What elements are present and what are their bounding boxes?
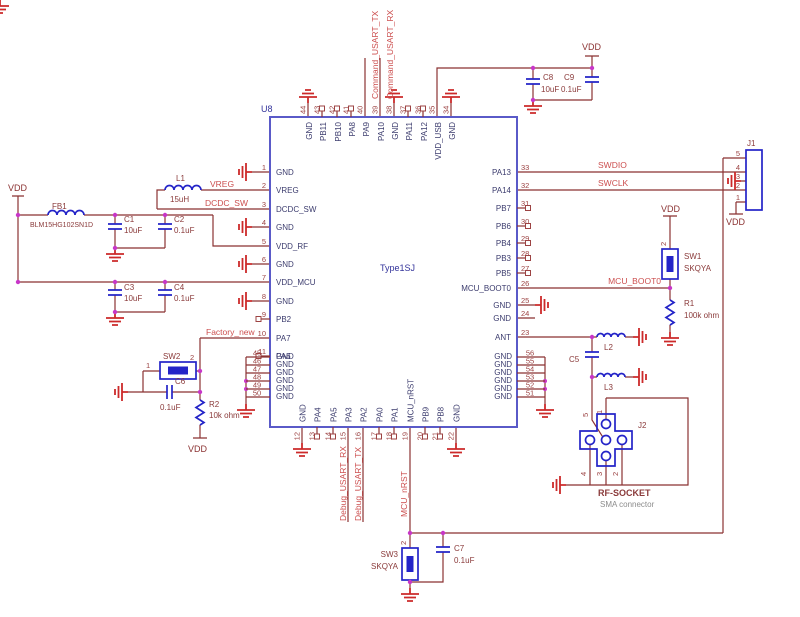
c4-ref: C4 [174,283,185,292]
sw1-value: SKQYA [684,264,712,273]
r2-ref: R2 [209,400,220,409]
inductor-l3-symbol [597,374,625,378]
ground-symbol [237,404,255,417]
switch-sw1-actuator [667,256,674,272]
l3-ref: L3 [604,383,613,392]
pin-name: PA4 [314,407,323,422]
pin-name: PB6 [496,222,512,231]
capacitor-c9-symbol [585,77,599,82]
pin-number: 10 [258,329,266,338]
pin-name: GND [493,301,511,310]
c6-ref: C6 [175,377,186,386]
pin-number: 6 [262,255,266,264]
pin-number: 22 [447,432,456,440]
pin-name: VDD_MCU [276,278,316,287]
pin-number: 32 [521,181,529,190]
c3-value: 10uF [124,294,142,303]
net-dcdc-sw: DCDC_SW [205,198,248,208]
ground-symbol [447,443,465,456]
capacitor-c3-symbol [108,290,122,295]
wires-power-left [12,172,270,312]
pin-number: 24 [521,309,529,318]
pin-number: 19 [401,432,410,440]
ground-symbol [401,588,419,601]
pin-number: 37 [399,106,408,114]
pin-name: GND [391,122,400,140]
vdd-label: VDD [661,204,681,214]
resistor-r2-symbol [196,400,204,425]
pin-number: 2 [262,181,266,190]
net-swclk: SWCLK [598,178,629,188]
pin-number: 51 [526,389,534,398]
capacitor-c7-symbol [436,547,450,552]
ground-symbol [299,90,317,103]
sw3-ref: SW3 [381,550,399,559]
pin-number: 50 [253,389,261,398]
j2-subtitle: SMA connector [600,500,655,509]
j1-pin-number: 2 [736,181,740,190]
pin-name: PA2 [360,407,369,422]
pin-number: 3 [262,200,266,209]
ground-symbol [293,443,311,456]
pin-number: 43 [313,106,322,114]
c3-ref: C3 [124,283,135,292]
ferrite-bead-fb1-symbol [48,211,84,216]
j1-pin-number: 3 [736,172,740,181]
pin-number: 25 [521,296,529,305]
ground-symbol [239,163,252,181]
pin-name: PA12 [420,121,429,141]
pin-name: DCDC_SW [276,205,317,214]
pin-name: VDD_RF [276,242,308,251]
pin-number: 41 [342,106,351,114]
sw1-ref: SW1 [684,252,702,261]
ground-symbol [239,255,252,273]
pin-name: GND [448,122,457,140]
ground-symbol [535,296,548,314]
c7-ref: C7 [454,544,465,553]
c2-value: 0.1uF [174,226,195,235]
pin-name: MCU_BOOT0 [461,284,511,293]
c8-ref: C8 [543,73,554,82]
ground-symbol [633,328,646,346]
c9-value: 0.1uF [561,85,582,94]
ground-symbol [553,476,566,494]
inductor-l1-symbol [165,186,201,191]
pin-name: GND [276,392,294,401]
net-command-usart-rx: Command_USART_RX [385,10,395,99]
pin-name: PB9 [422,406,431,422]
sw3-pin2: 2 [399,541,408,545]
wires-right [517,158,746,533]
j2-ref: J2 [638,421,647,430]
pin-number: 16 [354,432,363,440]
net-factory-new: Factory_new [206,327,256,337]
sw2-pin1: 1 [146,361,150,370]
pin-name: PA11 [405,121,414,140]
pin-number: 1 [262,163,266,172]
connector-j1-body [746,150,762,210]
pin-name: GND [299,404,308,422]
sw2-ref: SW2 [163,352,181,361]
net-debug-usart-rx: Debug_USART_RX [338,446,348,521]
pin-number: 23 [521,328,529,337]
pin-name: PA10 [377,121,386,141]
ic-refdes: U8 [261,104,273,114]
pin-name: ANT [495,333,511,342]
schematic-page: U8 Type1SJ [0,0,800,617]
pin-name: PB2 [276,315,292,324]
ground-symbol [536,404,554,417]
pin-name: PA13 [492,168,512,177]
pin-name: PA9 [362,121,371,136]
capacitor-c4-symbol [158,290,172,295]
l1-value: 15uH [170,195,189,204]
pin-number: 9 [262,310,266,319]
pin-name: PA8 [348,121,357,136]
j2-contact [586,436,595,445]
j1-pin-number: 5 [736,149,740,158]
pin-name: GND [276,223,294,232]
j2-pin2: 2 [611,472,620,476]
ic-pins: 44GND43PB1142PB1041PA840PA939PA1038GND37… [246,106,740,441]
c1-ref: C1 [124,215,135,224]
pin-number: 33 [521,163,529,172]
j2-pin5: 5 [581,413,590,417]
j2-contact [602,420,611,429]
net-mcu-boot0: MCU_BOOT0 [608,276,661,286]
capacitor-c2-symbol [158,224,172,229]
resistor-r1-symbol [666,300,674,325]
pin-number: 42 [328,106,337,114]
pin-name: PB11 [319,121,328,141]
r2-value: 10k ohm [209,411,240,420]
sw1-pin2: 2 [659,242,668,246]
j2-contact [602,436,611,445]
j2-pin3: 3 [595,472,604,476]
c4-value: 0.1uF [174,294,195,303]
vdd-label: VDD [8,183,28,193]
pin-number: 5 [262,237,266,246]
ground-symbol [633,368,646,386]
pin-number: 34 [442,106,451,114]
net-swdio: SWDIO [598,160,627,170]
j2-pin4: 4 [579,472,588,476]
net-debug-usart-tx: Debug_USART_TX [353,447,363,521]
ground-symbol [442,90,460,103]
pin-number: 15 [339,432,348,440]
pin-name: PB4 [496,239,512,248]
pin-name: GND [276,297,294,306]
pin-name: PA3 [345,407,354,422]
capacitor-c6-symbol [167,385,172,399]
pin-number: 36 [414,106,423,114]
net-vreg: VREG [210,179,234,189]
vdd-label: VDD [582,42,602,52]
pin-name: PA14 [492,186,512,195]
capacitor-c5-symbol [585,352,599,357]
pin-name: VDD_USB [434,122,443,160]
pin-name: PB8 [437,406,446,422]
capacitor-c1-symbol [108,224,122,229]
fb1-ref: FB1 [52,202,67,211]
pin-name: GND [305,122,314,140]
pin-number: 44 [299,106,308,114]
pin-name: GND [494,392,512,401]
switch-sw3-actuator [407,556,414,572]
c2-ref: C2 [174,215,185,224]
pin-number: 8 [262,292,266,301]
switch-sw2-actuator [168,367,188,375]
pin-name: GND [276,168,294,177]
ground-symbol [0,0,9,13]
connector-j2-body [580,414,632,466]
j1-pin-number: 4 [736,163,740,172]
pin-number: 12 [293,432,302,440]
pin-name: PB3 [496,254,512,263]
pin-name: PA0 [376,407,385,422]
pin-name: GND [453,404,462,422]
vdd-label: VDD [188,444,208,454]
pin-number: 7 [262,273,266,282]
ground-symbol [661,332,679,345]
ic-part-label: Type1SJ [380,263,415,273]
ground-symbol [239,292,252,310]
j1-pin-number: 1 [736,193,740,202]
pin-number: 26 [521,279,529,288]
pin-name: GND [493,314,511,323]
net-command-usart-tx: Command_USART_TX [370,10,380,99]
inductor-l2-symbol [597,334,625,338]
j2-pin1: 1 [595,410,604,414]
r1-value: 100k ohm [684,311,719,320]
c9-ref: C9 [564,73,575,82]
l2-ref: L2 [604,343,613,352]
pin-name: GND [276,260,294,269]
c1-value: 10uF [124,226,142,235]
net-mcu-nrst: MCU_nRST [399,471,409,517]
c6-value: 0.1uF [160,403,181,412]
pin-number: 39 [371,106,380,114]
no-connect-pad [256,317,261,322]
c8-value: 10uF [541,85,559,94]
pin-name: PA1 [391,407,400,422]
pin-name: PA5 [330,407,339,422]
pin-number: 35 [428,106,437,114]
c5-ref: C5 [569,355,580,364]
pin-name: PB5 [496,269,512,278]
ground-symbol [239,218,252,236]
j2-name: RF-SOCKET [598,488,651,498]
pin-number: 4 [262,218,266,227]
pin-number: 38 [385,106,394,114]
sw2-pin2: 2 [190,353,194,362]
pin-name: MCU_nRST [407,379,416,422]
r1-ref: R1 [684,299,695,308]
vdd-label: VDD [726,217,746,227]
c7-value: 0.1uF [454,556,475,565]
j2-contact [602,452,611,461]
schematic-canvas: U8 Type1SJ [0,0,800,617]
ground-symbol [115,383,128,401]
l1-ref: L1 [176,174,185,183]
pin-name: VREG [276,186,299,195]
j2-contact [618,436,627,445]
fb1-value: BLM15HG102SN1D [30,222,93,229]
pin-name: PA7 [276,334,291,343]
sw3-value: SKQYA [371,562,399,571]
capacitor-c8-symbol [526,79,540,84]
pin-name: PB7 [496,204,512,213]
wires-bottom [302,427,723,588]
j1-ref: J1 [747,139,756,148]
pin-name: PB10 [334,121,343,141]
pin-number: 40 [356,106,365,114]
